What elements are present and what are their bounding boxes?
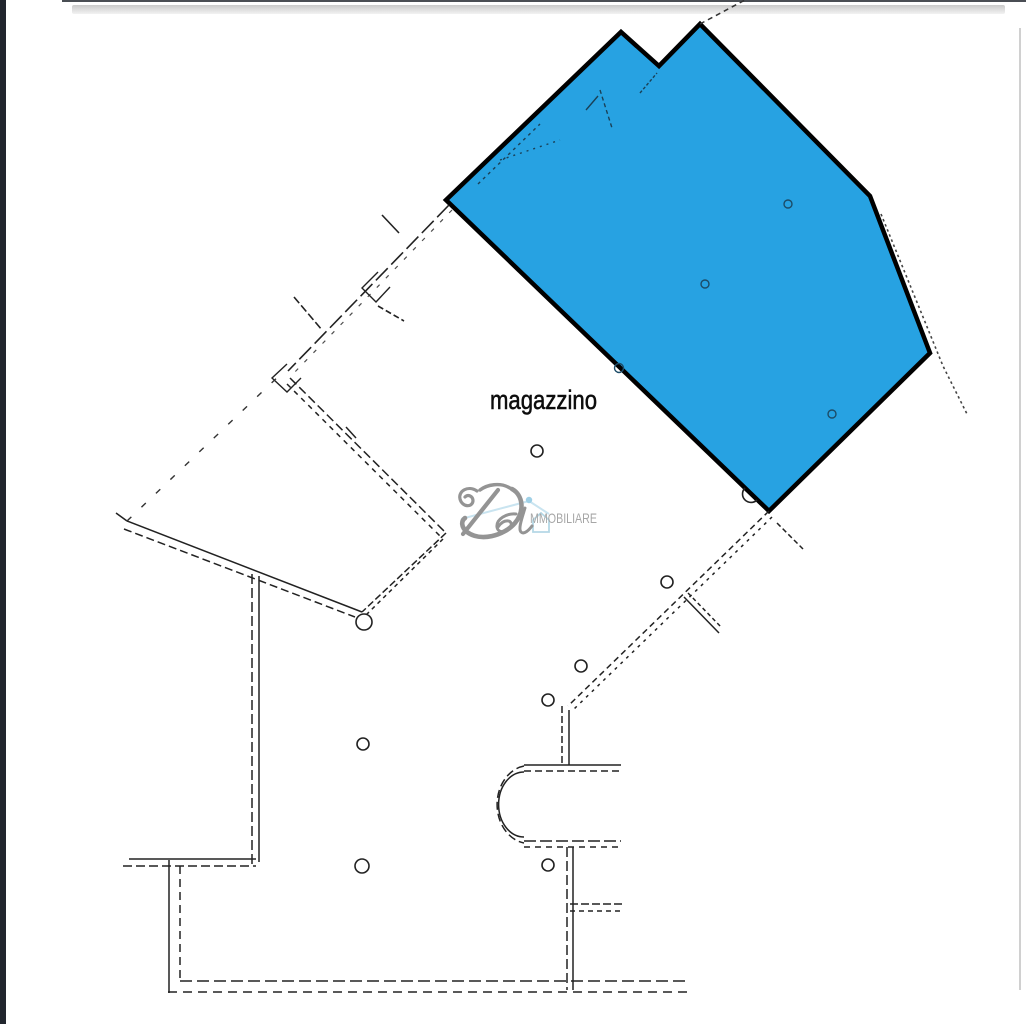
svg-text:magazzino: magazzino: [490, 385, 597, 415]
svg-text:MMOBILIARE: MMOBILIARE: [530, 510, 597, 526]
